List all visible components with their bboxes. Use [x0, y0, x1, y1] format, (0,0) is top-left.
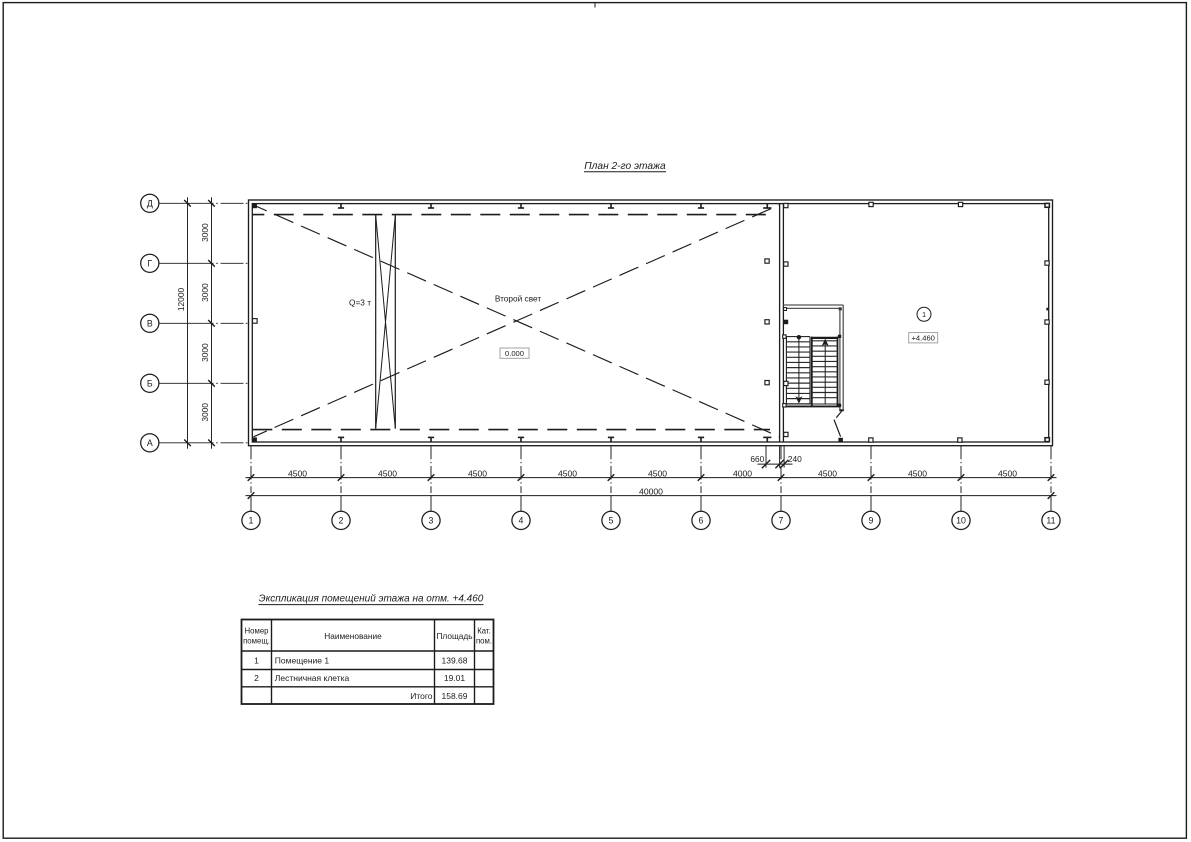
svg-text:11: 11	[1046, 516, 1055, 526]
svg-text:10: 10	[956, 516, 966, 526]
svg-text:А: А	[147, 438, 153, 448]
svg-text:пом.: пом.	[476, 637, 492, 646]
svg-text:помещ.: помещ.	[243, 637, 270, 646]
svg-text:660: 660	[750, 454, 764, 464]
svg-text:4500: 4500	[998, 469, 1017, 479]
svg-text:3000: 3000	[200, 283, 210, 302]
svg-text:4000: 4000	[733, 469, 752, 479]
svg-text:Помещение 1: Помещение 1	[275, 655, 330, 665]
svg-text:19.01: 19.01	[444, 673, 466, 683]
svg-text:4500: 4500	[378, 469, 397, 479]
svg-text:6: 6	[699, 516, 704, 526]
svg-text:Б: Б	[147, 378, 153, 388]
svg-text:9: 9	[869, 516, 874, 526]
svg-text:4500: 4500	[558, 469, 577, 479]
svg-text:5: 5	[609, 516, 614, 526]
svg-text:Площадь: Площадь	[436, 631, 472, 641]
svg-text:1: 1	[254, 655, 259, 665]
svg-text:Итого: Итого	[410, 691, 433, 701]
svg-text:3000: 3000	[200, 223, 210, 242]
svg-text:139.68: 139.68	[442, 655, 468, 665]
svg-text:Номер: Номер	[245, 627, 270, 636]
svg-text:3000: 3000	[200, 343, 210, 362]
svg-text:2: 2	[254, 673, 259, 683]
svg-text:Г: Г	[147, 258, 152, 268]
svg-text:4: 4	[519, 516, 524, 526]
svg-text:1: 1	[249, 516, 254, 526]
svg-text:3: 3	[429, 516, 434, 526]
svg-text:В: В	[147, 318, 153, 328]
svg-text:4500: 4500	[908, 469, 927, 479]
svg-text:158.69: 158.69	[442, 691, 468, 701]
svg-text:Д: Д	[147, 198, 153, 208]
svg-text:4500: 4500	[288, 469, 307, 479]
svg-text:План 2-го этажа: План 2-го этажа	[584, 161, 666, 172]
svg-text:3000: 3000	[200, 403, 210, 422]
svg-text:7: 7	[779, 516, 784, 526]
svg-text:Лестничная клетка: Лестничная клетка	[275, 673, 350, 683]
svg-text:0.000: 0.000	[505, 349, 524, 358]
svg-text:+4.460: +4.460	[911, 334, 934, 343]
svg-text:Наименование: Наименование	[324, 631, 382, 641]
svg-text:4500: 4500	[468, 469, 487, 479]
svg-text:Экспликация помещений этажа на: Экспликация помещений этажа на отм. +4.4…	[259, 594, 484, 605]
svg-text:40000: 40000	[639, 486, 663, 496]
svg-text:Кат.: Кат.	[477, 627, 491, 636]
svg-text:12000: 12000	[176, 288, 186, 312]
svg-text:4500: 4500	[648, 469, 667, 479]
svg-text:Второй свет: Второй свет	[495, 294, 542, 304]
svg-text:240: 240	[788, 454, 802, 464]
svg-text:2: 2	[339, 516, 344, 526]
svg-text:1: 1	[922, 310, 926, 319]
svg-text:Q=3 т: Q=3 т	[349, 297, 371, 307]
svg-text:4500: 4500	[818, 469, 837, 479]
